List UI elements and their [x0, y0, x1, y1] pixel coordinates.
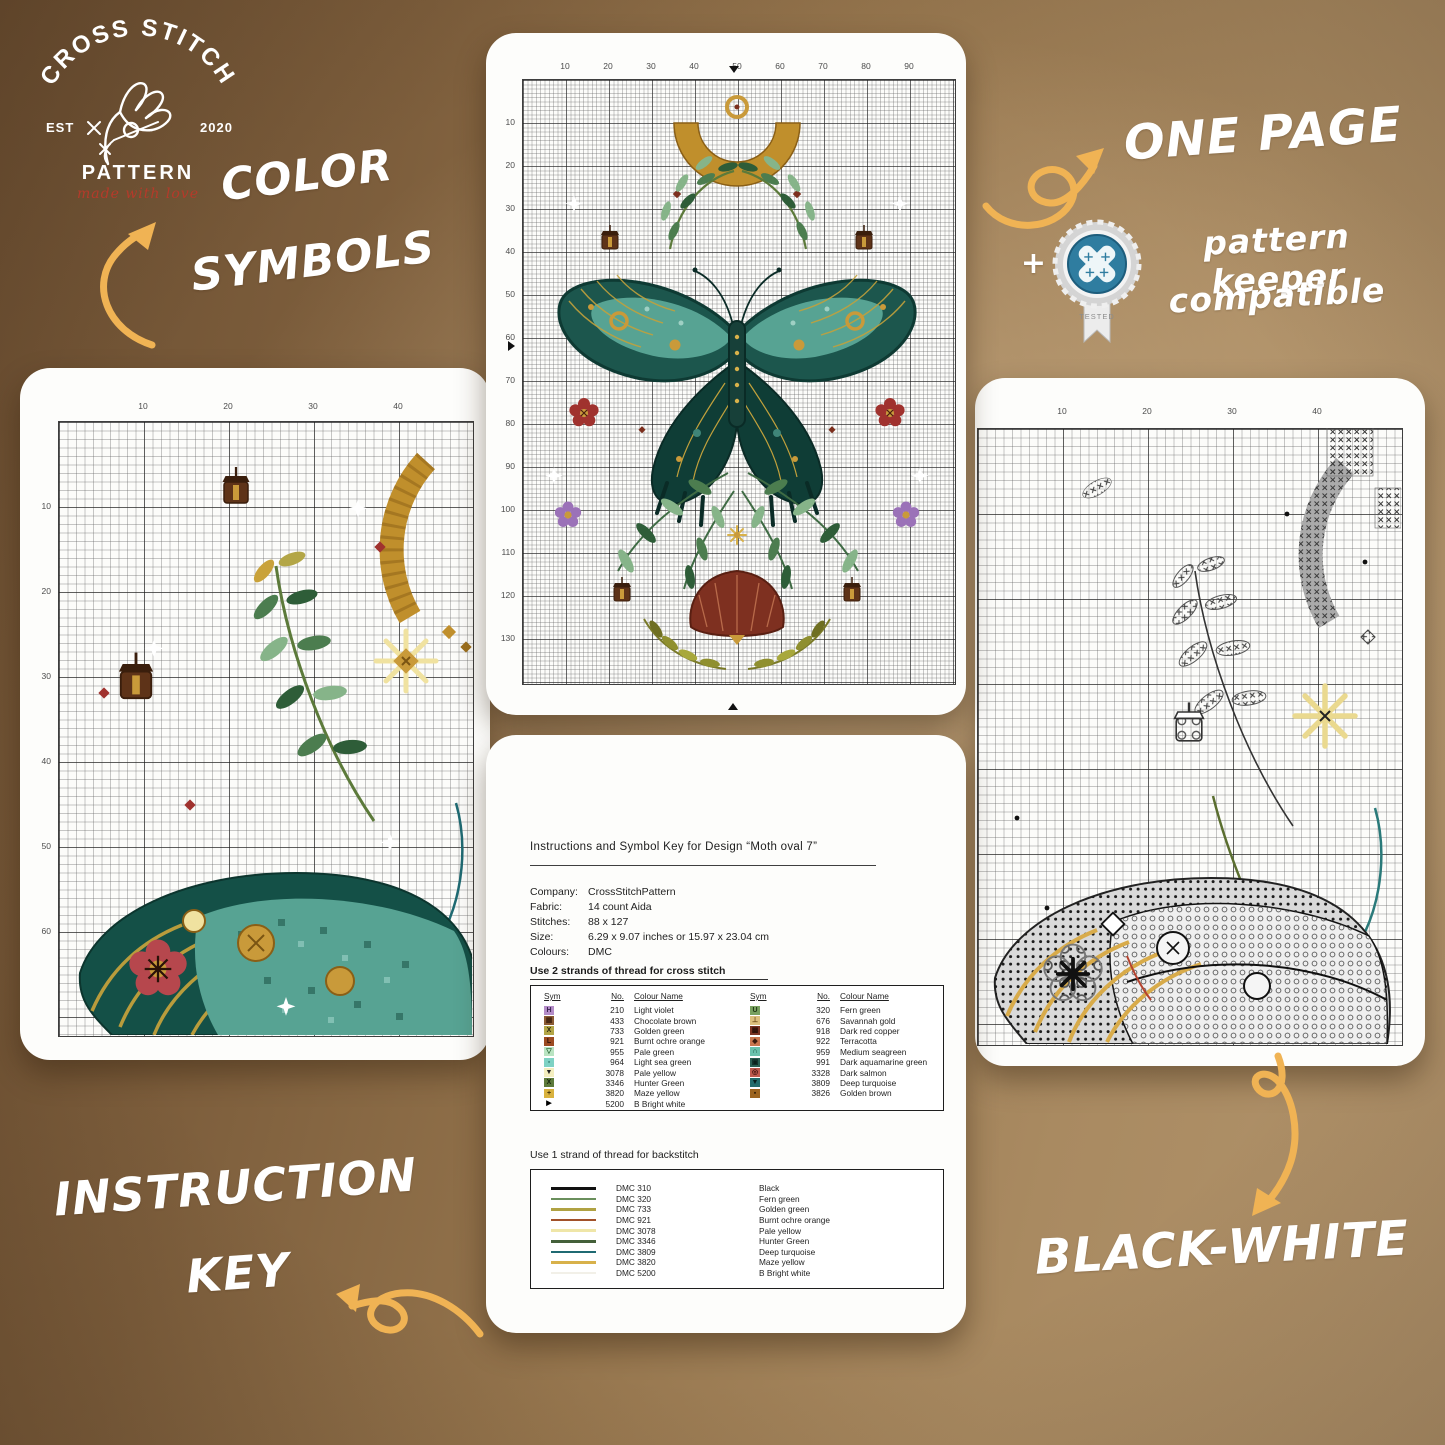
cross-stitch-key-table: SymNo.Colour Name H210Light violet▦433Ch… — [530, 985, 944, 1111]
ruler-tick: 40 — [1312, 406, 1321, 416]
thread-line-swatch — [551, 1272, 596, 1275]
symbol-swatch: ▽ — [544, 1047, 554, 1056]
symbol-swatch: ▪ — [750, 1089, 760, 1098]
ruler-tick: 30 — [646, 61, 655, 71]
pattern-page-color-chart: 102030405060708090 102030405060708090100… — [486, 33, 966, 715]
backstitch-row: DMC 310Black — [531, 1183, 943, 1194]
stitch-grid — [977, 428, 1403, 1046]
svg-text:TESTED: TESTED — [1079, 312, 1115, 321]
dmc-code: DMC 3820 — [616, 1257, 759, 1267]
backstitch-row: DMC 733Golden green — [531, 1204, 943, 1215]
backstitch-row: DMC 320Fern green — [531, 1194, 943, 1205]
thread-line-swatch — [551, 1261, 596, 1264]
ruler-tick: 10 — [560, 61, 569, 71]
ruler-tick: 70 — [818, 61, 827, 71]
pattern-page-black-white: 10203040 — [975, 378, 1425, 1066]
meta-row: Company:CrossStitchPattern — [530, 885, 769, 900]
dmc-code: DMC 3078 — [616, 1226, 759, 1236]
ruler-tick: 40 — [393, 401, 402, 411]
instruction-title: Instructions and Symbol Key for Design “… — [530, 841, 817, 853]
ruler-tick: 30 — [42, 671, 51, 681]
colour-name: Chocolate brown — [634, 1016, 696, 1026]
ruler-tick: 30 — [1227, 406, 1236, 416]
colour-name: Maze yellow — [759, 1257, 805, 1267]
dmc-number: 3826 — [760, 1088, 830, 1098]
ruler-left: 102030405060 — [26, 421, 54, 1037]
dmc-code: DMC 310 — [616, 1183, 759, 1193]
colour-name: Light sea green — [634, 1057, 691, 1067]
arrow-to-color-symbols — [104, 230, 152, 345]
hand-needle-icon — [74, 60, 204, 170]
ruler-top: 10203040 — [977, 406, 1403, 418]
dmc-number: 991 — [760, 1057, 830, 1067]
backstitch-row: DMC 3820Maze yellow — [531, 1257, 943, 1268]
key-row: L921Burnt ochre orange — [531, 1036, 737, 1046]
key-row: U320Fern green — [737, 1005, 943, 1015]
meta-label: Stitches: — [530, 915, 588, 930]
dmc-code: DMC 921 — [616, 1215, 759, 1225]
ruler-tick: 80 — [861, 61, 870, 71]
key-row: X3346Hunter Green — [531, 1078, 737, 1088]
thread-line-swatch — [551, 1229, 596, 1232]
thread-line-swatch — [551, 1219, 596, 1222]
symbol-swatch: ▼ — [544, 1068, 554, 1077]
meta-value: CrossStitchPattern — [588, 886, 676, 898]
colour-name: Hunter Green — [759, 1236, 809, 1246]
backstitch-row: DMC 921Burnt ochre orange — [531, 1215, 943, 1226]
dmc-number: 210 — [554, 1005, 624, 1015]
symbol-swatch: ▩ — [750, 1026, 760, 1035]
thread-line-swatch — [551, 1240, 596, 1243]
meta-label: Colours: — [530, 945, 588, 960]
colour-name: Golden green — [759, 1204, 809, 1214]
ruler-tick: 60 — [775, 61, 784, 71]
backstitch-row: DMC 3078Pale yellow — [531, 1225, 943, 1236]
symbol-swatch: ▣ — [750, 1058, 760, 1067]
ruler-tick: 30 — [506, 203, 515, 213]
dmc-number: 922 — [760, 1036, 830, 1046]
symbol-swatch: ⊥ — [750, 1016, 760, 1025]
meta-value: 6.29 x 9.07 inches or 15.97 x 23.04 cm — [588, 931, 769, 943]
ruler-tick: 70 — [506, 375, 515, 385]
colour-name: Dark red copper — [840, 1026, 900, 1036]
ruler-tick: 40 — [506, 246, 515, 256]
colour-name: Dark salmon — [840, 1068, 887, 1078]
dmc-code: DMC 3346 — [616, 1236, 759, 1246]
colour-name: Hunter Green — [634, 1078, 684, 1088]
annotation-key: KEY — [126, 1238, 349, 1307]
ruler-top: 10203040 — [58, 401, 474, 413]
tested-badge-icon: TESTED — [1046, 216, 1148, 346]
arrow-to-instruction-key — [352, 1293, 480, 1334]
dmc-code: DMC 733 — [616, 1204, 759, 1214]
key-row: H210Light violet — [531, 1005, 737, 1015]
meta-value: DMC — [588, 946, 612, 958]
ruler-top: 102030405060708090 — [522, 61, 956, 73]
symbol-swatch: X — [544, 1026, 554, 1035]
meta-row: Stitches:88 x 127 — [530, 915, 769, 930]
key-row: ◆922Terracotta — [737, 1036, 943, 1046]
symbol-swatch: L — [544, 1037, 554, 1046]
ruler-tick: 10 — [138, 401, 147, 411]
dmc-number: 320 — [760, 1005, 830, 1015]
symbol-swatch: H — [544, 1006, 554, 1015]
ruler-tick: 30 — [308, 401, 317, 411]
dmc-number: 433 — [554, 1016, 624, 1026]
thread-line-swatch — [551, 1251, 596, 1254]
dmc-number: 5200 — [554, 1099, 624, 1109]
ruler-tick: 20 — [1142, 406, 1151, 416]
pattern-meta: Company:CrossStitchPatternFabric:14 coun… — [530, 885, 769, 960]
ruler-tick: 90 — [904, 61, 913, 71]
meta-value: 14 count Aida — [588, 901, 652, 913]
meta-label: Size: — [530, 930, 588, 945]
ruler-tick: 10 — [42, 501, 51, 511]
key-row: ▣991Dark aquamarine green — [737, 1057, 943, 1067]
colour-name: Light violet — [634, 1005, 674, 1015]
dmc-number: 964 — [554, 1057, 624, 1067]
symbol-swatch: ▶ — [544, 1099, 554, 1108]
meta-label: Fabric: — [530, 900, 588, 915]
colour-name: Black — [759, 1183, 779, 1193]
key-row: ∩959Medium seagreen — [737, 1047, 943, 1057]
key-row: +3820Maze yellow — [531, 1088, 737, 1098]
thread-line-swatch — [551, 1187, 596, 1190]
symbol-swatch: ▫ — [544, 1058, 554, 1067]
ruler-tick: 130 — [501, 633, 515, 643]
ruler-tick: 50 — [42, 841, 51, 851]
ruler-tick: 80 — [506, 418, 515, 428]
ruler-tick: 40 — [42, 756, 51, 766]
thread-line-swatch — [551, 1198, 596, 1201]
dmc-number: 3809 — [760, 1078, 830, 1088]
ruler-tick: 20 — [603, 61, 612, 71]
key-row: ▽955Pale green — [531, 1047, 737, 1057]
key-table-header: SymNo.Colour Name — [531, 991, 737, 1001]
key-row: ▪3826Golden brown — [737, 1088, 943, 1098]
colour-name: Burnt ochre orange — [759, 1215, 830, 1225]
meta-row: Fabric:14 count Aida — [530, 900, 769, 915]
backstitch-row: DMC 3809Deep turquoise — [531, 1247, 943, 1258]
key-row: ▼3809Deep turquoise — [737, 1078, 943, 1088]
key-row: ◎3328Dark salmon — [737, 1067, 943, 1077]
dmc-number: 918 — [760, 1026, 830, 1036]
dmc-number: 676 — [760, 1016, 830, 1026]
dmc-number: 3820 — [554, 1088, 624, 1098]
dmc-number: 959 — [760, 1047, 830, 1057]
backstitch-row: DMC 5200B Bright white — [531, 1268, 943, 1279]
ruler-tick: 120 — [501, 590, 515, 600]
dmc-code: DMC 3809 — [616, 1247, 759, 1257]
key-row: ⊥676Savannah gold — [737, 1015, 943, 1025]
dmc-number: 3328 — [760, 1068, 830, 1078]
symbol-swatch: ◆ — [750, 1037, 760, 1046]
promo-collage: CROSS STITCH EST 2020 PATTERN made with … — [0, 0, 1445, 1445]
colour-name: Pale yellow — [634, 1068, 676, 1078]
meta-value: 88 x 127 — [588, 916, 628, 928]
meta-row: Colours:DMC — [530, 945, 769, 960]
instruction-page-card: Instructions and Symbol Key for Design “… — [486, 735, 966, 1333]
dmc-number: 3346 — [554, 1078, 624, 1088]
dmc-number: 733 — [554, 1026, 624, 1036]
title-divider — [530, 865, 876, 866]
key-table-header: SymNo.Colour Name — [737, 991, 943, 1001]
colour-name: Deep turquoise — [759, 1247, 815, 1257]
key-row: ▶5200B Bright white — [531, 1099, 737, 1109]
symbol-swatch: ▦ — [544, 1016, 554, 1025]
ruler-tick: 10 — [506, 117, 515, 127]
ruler-tick: 60 — [42, 926, 51, 936]
ruler-tick: 100 — [501, 504, 515, 514]
colour-name: Fern green — [759, 1194, 800, 1204]
key-row: ▼3078Pale yellow — [531, 1067, 737, 1077]
colour-name: B Bright white — [759, 1268, 810, 1278]
colour-name: Maze yellow — [634, 1088, 680, 1098]
colour-name: Golden green — [634, 1026, 684, 1036]
colour-name: Pale yellow — [759, 1226, 801, 1236]
pattern-keeper-badge: TESTED — [1046, 216, 1148, 346]
center-column-marker-bottom — [728, 703, 738, 710]
key-column-left: SymNo.Colour Name H210Light violet▦433Ch… — [531, 991, 737, 1110]
colour-name: Fern green — [840, 1005, 881, 1015]
dmc-number: 955 — [554, 1047, 624, 1057]
ruler-tick: 10 — [1057, 406, 1066, 416]
stitch-grid — [522, 79, 956, 685]
colour-name: Dark aquamarine green — [840, 1057, 927, 1067]
ruler-tick: 110 — [501, 547, 515, 557]
center-column-marker — [729, 66, 739, 73]
colour-name: Burnt ochre orange — [634, 1036, 705, 1046]
symbol-swatch: X — [544, 1078, 554, 1087]
key-row: X733Golden green — [531, 1026, 737, 1036]
ruler-left: 102030405060708090100110120130 — [492, 79, 518, 685]
key-row: ▦433Chocolate brown — [531, 1015, 737, 1025]
ruler-tick: 20 — [42, 586, 51, 596]
symbol-swatch: + — [544, 1089, 554, 1098]
colour-name: Medium seagreen — [840, 1047, 906, 1057]
colour-name: Deep turquoise — [840, 1078, 896, 1088]
logo-est: EST — [46, 120, 74, 135]
dmc-number: 3078 — [554, 1068, 624, 1078]
symbol-swatch: ▼ — [750, 1078, 760, 1087]
symbol-swatch: U — [750, 1006, 760, 1015]
cross-stitch-heading: Use 2 strands of thread for cross stitch — [530, 965, 768, 980]
dmc-code: DMC 320 — [616, 1194, 759, 1204]
symbol-swatch: ◎ — [750, 1068, 760, 1077]
dmc-number: 921 — [554, 1036, 624, 1046]
backstitch-row: DMC 3346Hunter Green — [531, 1236, 943, 1247]
ruler-tick: 50 — [506, 289, 515, 299]
dmc-code: DMC 5200 — [616, 1268, 759, 1278]
colour-name: B Bright white — [634, 1099, 685, 1109]
backstitch-key-table: DMC 310BlackDMC 320Fern greenDMC 733Gold… — [530, 1169, 944, 1289]
colour-name: Golden brown — [840, 1088, 892, 1098]
stitch-grid — [58, 421, 474, 1037]
logo-year: 2020 — [200, 120, 233, 135]
thread-line-swatch — [551, 1208, 596, 1211]
pattern-page-color-detail: 10203040 102030405060 — [20, 368, 490, 1060]
symbol-swatch: ∩ — [750, 1047, 760, 1056]
key-column-right: SymNo.Colour Name U320Fern green⊥676Sava… — [737, 991, 943, 1110]
key-row: ▩918Dark red copper — [737, 1026, 943, 1036]
colour-name: Terracotta — [840, 1036, 877, 1046]
annotation-symbols: SYMBOLS — [166, 219, 460, 305]
annotation-one-page: ONE PAGE — [1111, 96, 1414, 173]
annotation-black-white: BLACK-WHITE — [997, 1208, 1445, 1287]
colour-name: Savannah gold — [840, 1016, 895, 1026]
backstitch-heading: Use 1 strand of thread for backstitch — [530, 1149, 699, 1161]
meta-label: Company: — [530, 885, 588, 900]
colour-name: Pale green — [634, 1047, 674, 1057]
meta-row: Size:6.29 x 9.07 inches or 15.97 x 23.04… — [530, 930, 769, 945]
ruler-tick: 90 — [506, 461, 515, 471]
ruler-tick: 40 — [689, 61, 698, 71]
arrow-to-black-white — [1255, 1056, 1295, 1205]
center-row-marker — [508, 341, 515, 351]
ruler-tick: 20 — [223, 401, 232, 411]
annotation-instruction: INSTRUCTION — [37, 1146, 435, 1227]
key-row: ▫964Light sea green — [531, 1057, 737, 1067]
ruler-tick: 20 — [506, 160, 515, 170]
